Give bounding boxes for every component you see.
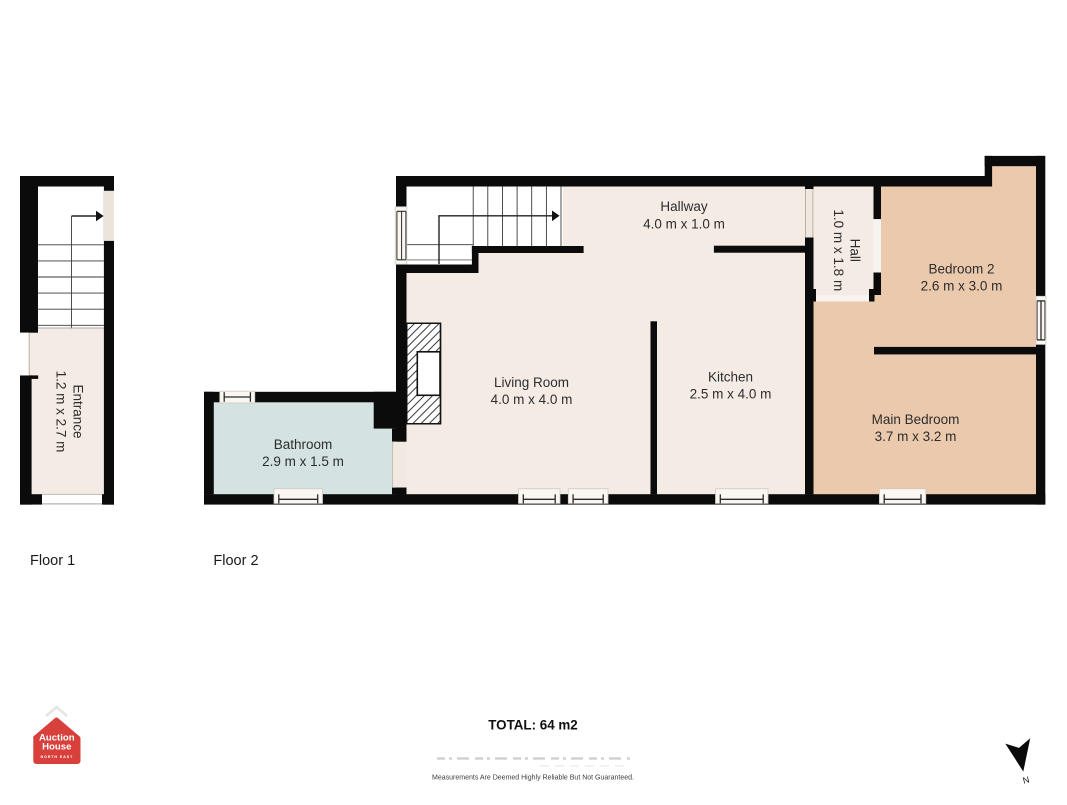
svg-text:Entrance: Entrance: [71, 384, 86, 438]
svg-text:4.0 m x 1.0 m: 4.0 m x 1.0 m: [643, 217, 725, 232]
svg-text:TOTAL: 64 m2: TOTAL: 64 m2: [488, 718, 578, 733]
svg-text:House: House: [42, 741, 71, 752]
svg-text:Bathroom: Bathroom: [274, 437, 333, 452]
svg-text:Hallway: Hallway: [660, 199, 708, 214]
svg-text:1.2 m x 2.7 m: 1.2 m x 2.7 m: [54, 371, 69, 453]
svg-text:2.9 m x 1.5 m: 2.9 m x 1.5 m: [262, 454, 344, 469]
svg-text:Measurements Are Deemed Highly: Measurements Are Deemed Highly Reliable …: [432, 775, 634, 782]
svg-text:Bedroom 2: Bedroom 2: [928, 262, 994, 277]
svg-text:2.5 m x 4.0 m: 2.5 m x 4.0 m: [690, 387, 772, 402]
svg-text:2.6 m x 3.0 m: 2.6 m x 3.0 m: [921, 279, 1003, 294]
svg-text:Floor 2: Floor 2: [213, 553, 258, 569]
svg-text:Main Bedroom: Main Bedroom: [872, 412, 960, 427]
svg-text:NORTH EAST: NORTH EAST: [40, 755, 73, 759]
svg-text:Kitchen: Kitchen: [708, 370, 753, 385]
svg-text:4.0 m x 4.0 m: 4.0 m x 4.0 m: [491, 392, 573, 407]
svg-text:Hall: Hall: [848, 239, 863, 262]
svg-text:1.0 m x 1.8 m: 1.0 m x 1.8 m: [831, 209, 846, 291]
svg-text:3.7 m x 3.2 m: 3.7 m x 3.2 m: [875, 429, 957, 444]
svg-text:Floor 1: Floor 1: [30, 553, 75, 569]
svg-text:Living Room: Living Room: [494, 375, 569, 390]
